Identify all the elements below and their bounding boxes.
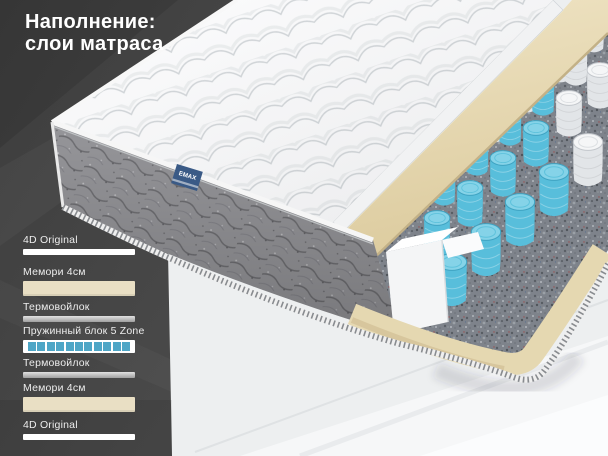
spring-segment bbox=[103, 342, 111, 351]
mattress-layers-infographic: EMAX Наполнение: слои матраса 4D Origina… bbox=[0, 0, 608, 456]
layer-label: Мемори 4см bbox=[23, 266, 135, 278]
spring-segment bbox=[113, 342, 121, 351]
layer-label: Термовойлок bbox=[23, 357, 135, 369]
title-line-2: слои матраса bbox=[25, 33, 164, 55]
layer-legend-item: Мемори 4см bbox=[23, 382, 135, 412]
spring-segment bbox=[122, 342, 130, 351]
layer-label: 4D Original bbox=[23, 234, 135, 246]
layer-label: Пружинный блок 5 Zone bbox=[23, 325, 135, 337]
layer-legend-item: Мемори 4см bbox=[23, 266, 135, 296]
layer-swatch-beige bbox=[23, 281, 135, 296]
spring-segment bbox=[94, 342, 102, 351]
layer-legend-item: Термовойлок bbox=[23, 357, 135, 378]
spring-segment bbox=[75, 342, 83, 351]
spring-segment bbox=[37, 342, 45, 351]
layer-legend-item: Термовойлок bbox=[23, 301, 135, 322]
layer-legend-item: Пружинный блок 5 Zone bbox=[23, 325, 135, 353]
layer-swatch-gray bbox=[23, 372, 135, 378]
layer-swatch-white bbox=[23, 249, 135, 255]
spring-segment bbox=[66, 342, 74, 351]
spring-segment bbox=[84, 342, 92, 351]
spring-segment bbox=[56, 342, 64, 351]
layer-label: Термовойлок bbox=[23, 301, 135, 313]
layer-swatch-white bbox=[23, 434, 135, 440]
layer-legend-item: 4D Original bbox=[23, 234, 135, 255]
spring-segment bbox=[47, 342, 55, 351]
layer-swatch-gray bbox=[23, 316, 135, 322]
spring-segment bbox=[28, 342, 36, 351]
page-title: Наполнение: слои матраса bbox=[25, 11, 164, 55]
layer-label: 4D Original bbox=[23, 419, 135, 431]
title-line-1: Наполнение: bbox=[25, 11, 156, 33]
layer-legend-item: 4D Original bbox=[23, 419, 135, 440]
layer-swatch-springs bbox=[23, 340, 135, 353]
layer-label: Мемори 4см bbox=[23, 382, 135, 394]
layer-swatch-beige bbox=[23, 397, 135, 412]
